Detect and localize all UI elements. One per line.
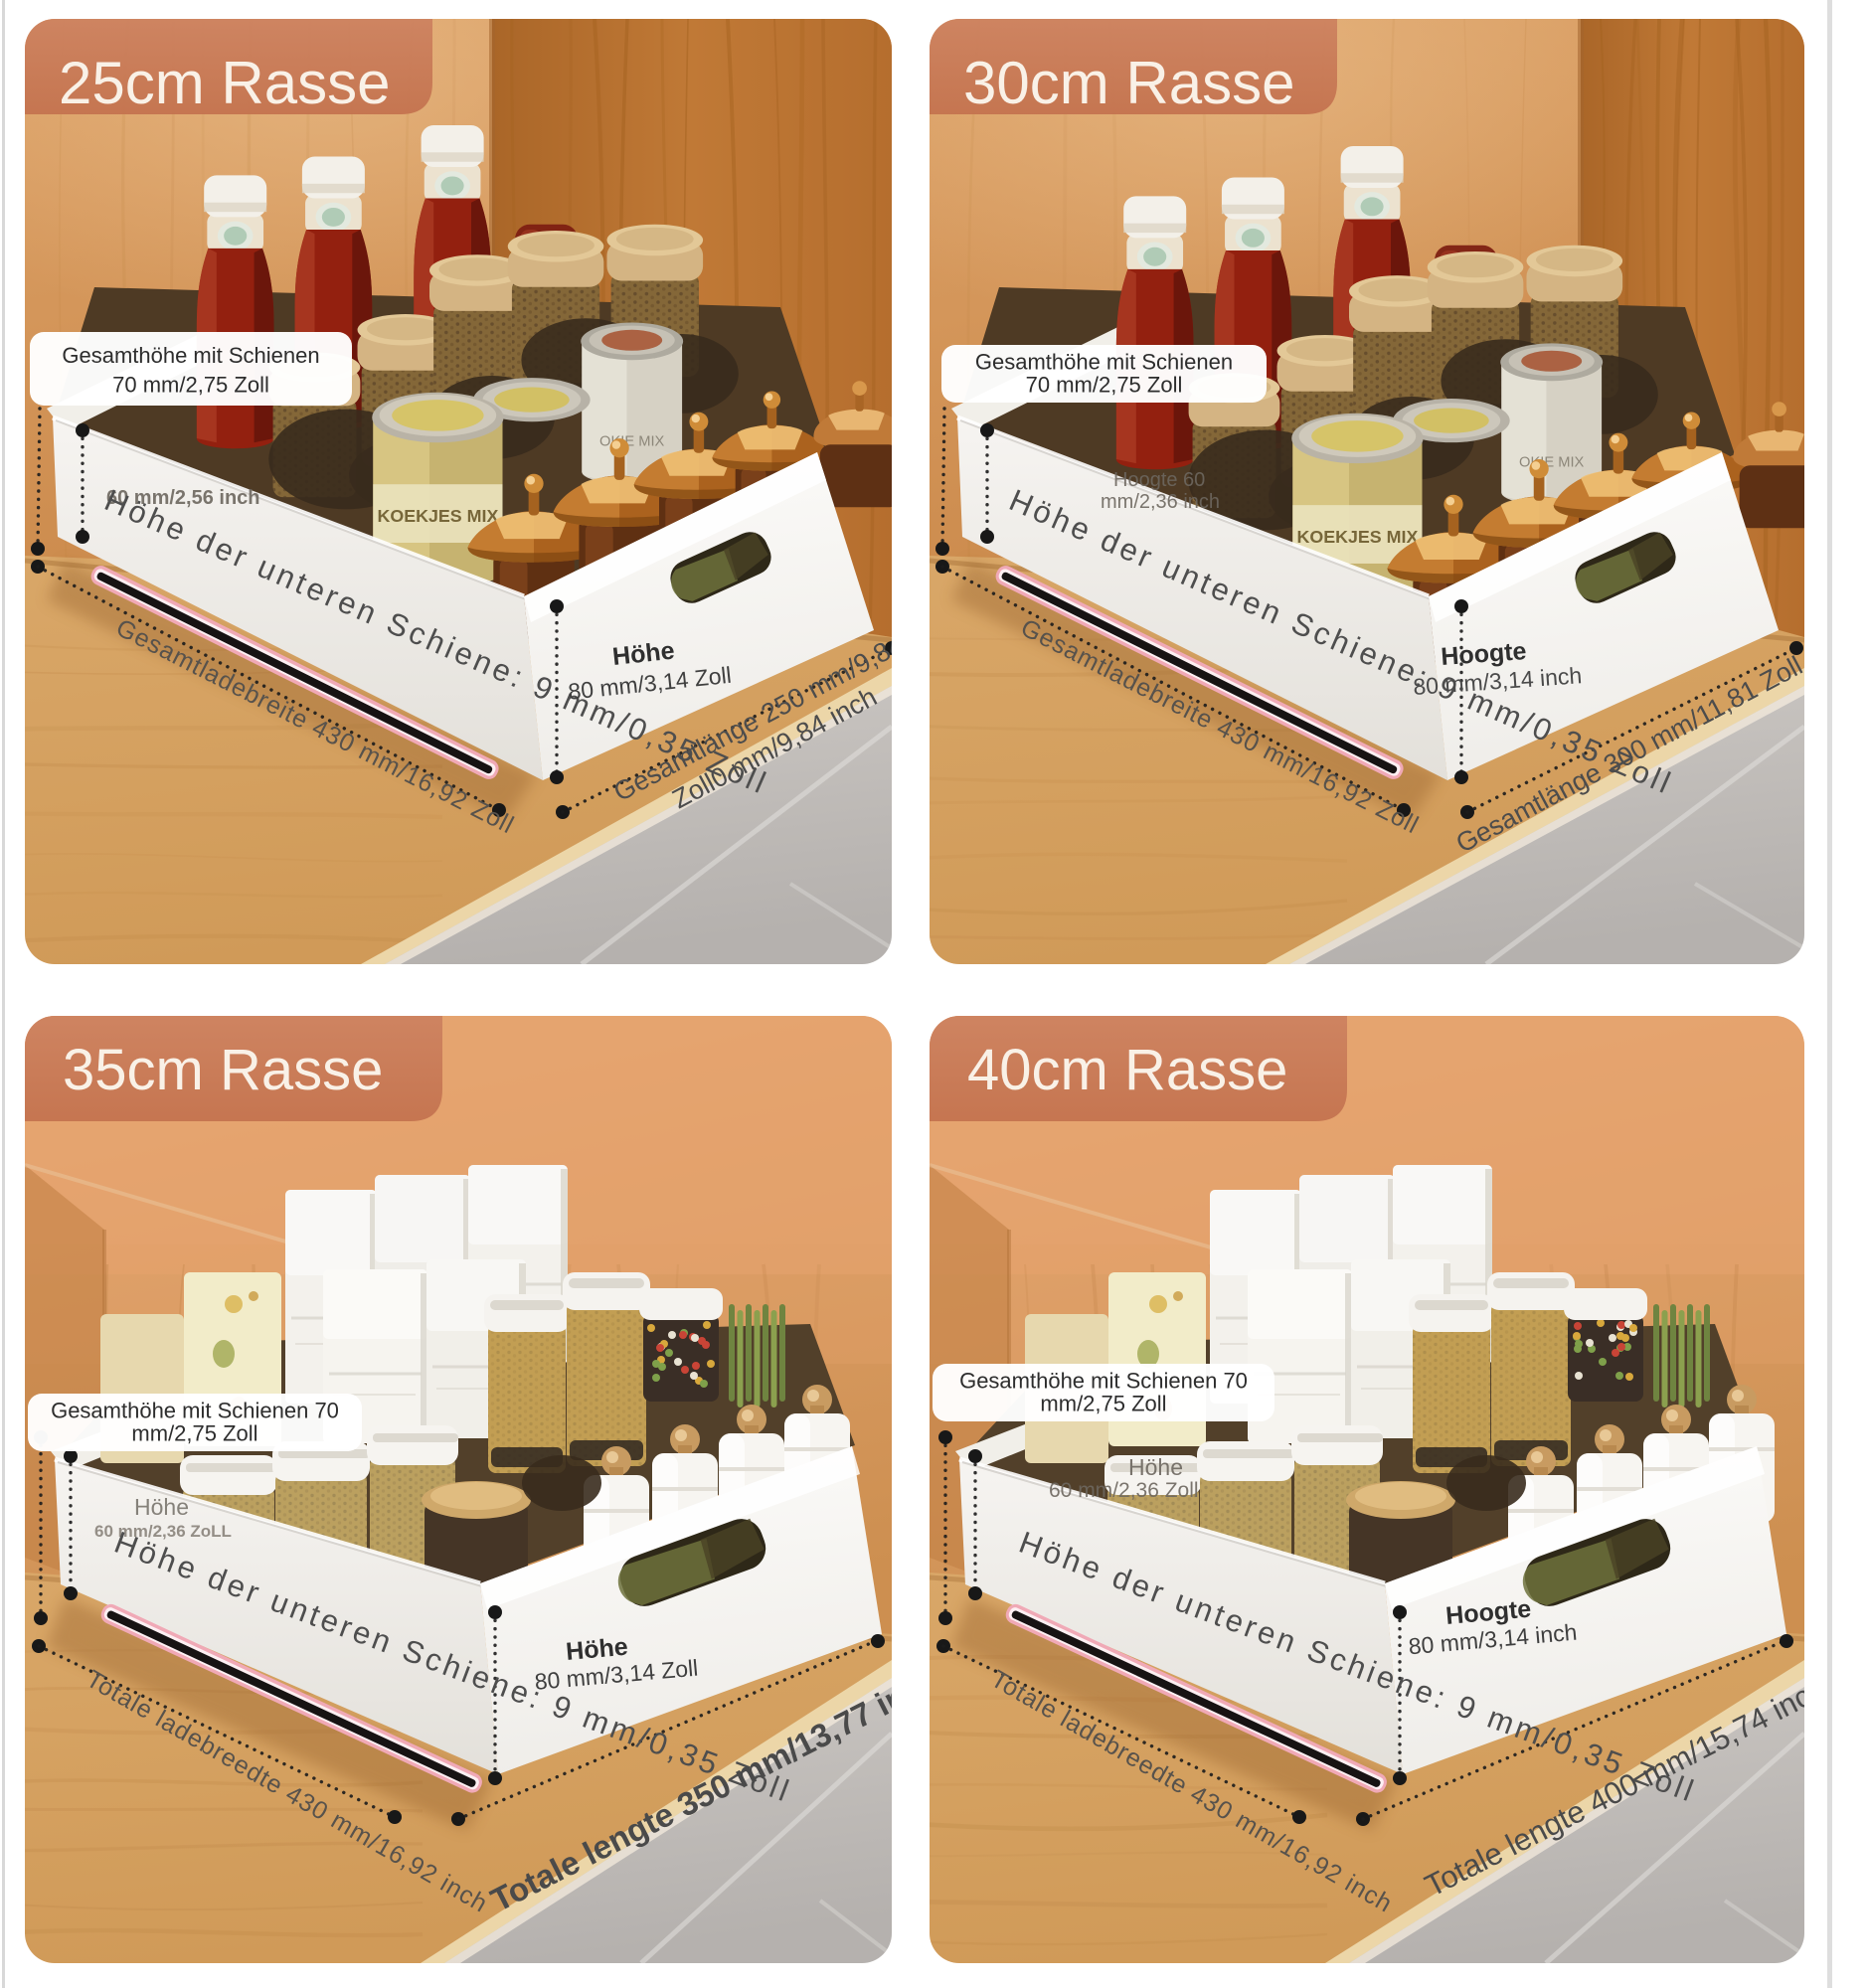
svg-text:Höhe: Höhe <box>134 1494 189 1520</box>
svg-text:70 mm/2,75 Zoll: 70 mm/2,75 Zoll <box>1026 373 1183 398</box>
svg-text:40cm Rasse: 40cm Rasse <box>967 1038 1287 1102</box>
svg-text:30cm Rasse: 30cm Rasse <box>963 50 1294 116</box>
svg-text:KOEKJES MIX: KOEKJES MIX <box>1296 527 1418 547</box>
svg-text:Höhe: Höhe <box>1128 1454 1183 1480</box>
svg-text:25cm Rasse: 25cm Rasse <box>59 50 390 116</box>
svg-text:mm/2,75 Zoll: mm/2,75 Zoll <box>1040 1392 1166 1416</box>
svg-text:60 mm/2,36 ZoLL: 60 mm/2,36 ZoLL <box>94 1522 232 1541</box>
svg-text:60 mm/2,36 Zoll: 60 mm/2,36 Zoll <box>1049 1479 1199 1502</box>
svg-text:mm/2,75 Zoll: mm/2,75 Zoll <box>131 1421 257 1446</box>
svg-text:Gesamthöhe mit Schienen: Gesamthöhe mit Schienen <box>62 343 319 368</box>
svg-text:OKIE MIX: OKIE MIX <box>599 433 664 449</box>
svg-text:mm/2,36 inch: mm/2,36 inch <box>1101 491 1220 513</box>
svg-text:Gesamthöhe mit Schienen 70: Gesamthöhe mit Schienen 70 <box>959 1368 1248 1393</box>
svg-text:Gesamthöhe mit Schienen: Gesamthöhe mit Schienen <box>975 349 1233 374</box>
svg-text:35cm Rasse: 35cm Rasse <box>63 1038 383 1102</box>
svg-text:Hoogte: Hoogte <box>1440 637 1527 671</box>
svg-text:KOEKJES MIX: KOEKJES MIX <box>377 506 498 526</box>
svg-text:Gesamthöhe mit Schienen 70: Gesamthöhe mit Schienen 70 <box>51 1398 339 1422</box>
svg-text:70 mm/2,75 Zoll: 70 mm/2,75 Zoll <box>112 373 269 398</box>
svg-text:Hoogte 60: Hoogte 60 <box>1113 469 1205 491</box>
svg-text:OKIE MIX: OKIE MIX <box>1519 454 1584 470</box>
